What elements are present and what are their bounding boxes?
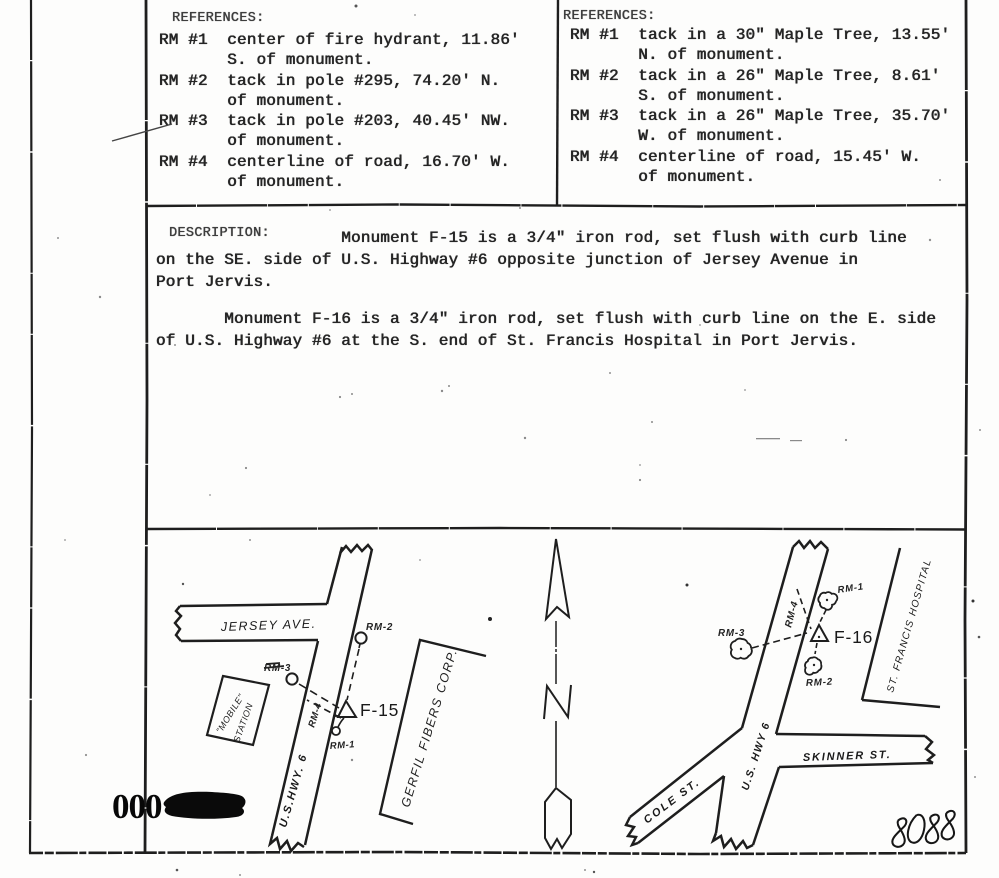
svg-text:RM-1: RM-1 [837, 581, 865, 596]
svg-text:RM-1: RM-1 [329, 739, 355, 752]
svg-text:RM-2: RM-2 [806, 677, 834, 689]
svg-text:000: 000 [112, 787, 162, 826]
svg-text:GERFIL FIBERS CORP.: GERFIL FIBERS CORP. [398, 647, 460, 809]
svg-text:SKINNER ST.: SKINNER ST. [803, 749, 892, 764]
svg-text:RM-2: RM-2 [366, 622, 393, 633]
svg-text:RM-4: RM-4 [783, 600, 801, 629]
svg-text:F-15: F-15 [360, 700, 399, 720]
svg-text:RM-4: RM-4 [306, 701, 324, 729]
svg-text:F-16: F-16 [834, 627, 873, 647]
svg-text:JERSEY AVE.: JERSEY AVE. [220, 617, 317, 634]
svg-text:RM-3: RM-3 [718, 628, 745, 639]
svg-text:U.S. HWY 6: U.S. HWY 6 [739, 720, 772, 792]
